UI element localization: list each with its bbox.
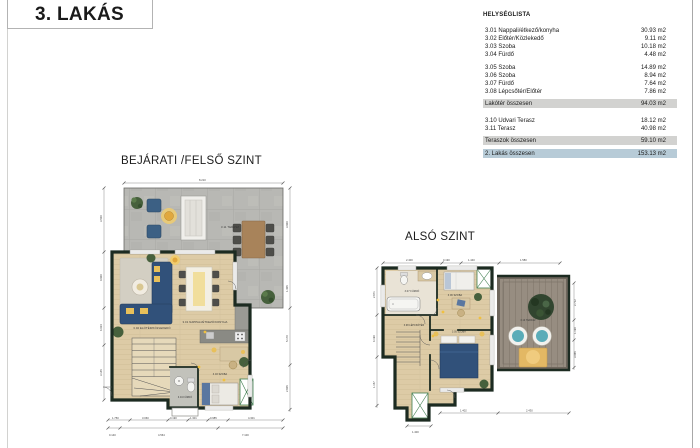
entry-step xyxy=(172,408,198,416)
total-label: Teraszok összesen xyxy=(483,137,536,145)
plant xyxy=(480,380,489,389)
decor-lamp xyxy=(241,350,245,354)
living-total-row: Lakótér összesen94.03 m2 xyxy=(483,99,677,108)
room-row: 3.03 Szoba10.18 m2 xyxy=(483,43,677,51)
kitchen-cabinet xyxy=(235,305,250,330)
plant xyxy=(239,357,249,367)
svg-text:4.190: 4.190 xyxy=(372,335,376,342)
plant xyxy=(113,327,124,338)
svg-text:4.301: 4.301 xyxy=(248,416,255,420)
room-name: 3.04 Fürdő xyxy=(483,51,514,59)
room-row: 3.11 Terasz40.98 m2 xyxy=(483,125,677,133)
svg-text:1.301: 1.301 xyxy=(190,416,197,420)
svg-text:1.440: 1.440 xyxy=(468,258,475,262)
svg-text:3.900: 3.900 xyxy=(285,221,289,228)
svg-text:2.712: 2.712 xyxy=(573,299,577,306)
svg-text:1.580: 1.580 xyxy=(520,258,527,262)
room-area: 10.18 m2 xyxy=(641,43,677,51)
svg-text:1.190: 1.190 xyxy=(573,327,577,334)
room-label-bath7: 3.07 FÜRDŐ xyxy=(405,290,420,293)
svg-text:0.140: 0.140 xyxy=(109,433,116,437)
room-area: 30.93 m2 xyxy=(641,27,677,35)
room-area: 7.86 m2 xyxy=(644,88,677,96)
room-area: 40.98 m2 xyxy=(641,125,677,133)
svg-text:4.024: 4.024 xyxy=(99,324,103,331)
lower-plan-title: ALSÓ SZINT xyxy=(405,231,475,243)
room-area: 14.89 m2 xyxy=(641,64,677,72)
svg-text:0.900: 0.900 xyxy=(99,274,103,281)
room-name: 3.03 Szoba xyxy=(483,43,515,51)
total-label: Lakótér összesen xyxy=(483,100,532,108)
svg-text:3.500: 3.500 xyxy=(99,215,103,222)
svg-text:4.564: 4.564 xyxy=(158,433,165,437)
armchair xyxy=(147,225,161,238)
svg-text:1.402: 1.402 xyxy=(460,409,467,413)
bathtub xyxy=(387,297,420,311)
room-row: 3.05 Szoba14.89 m2 xyxy=(483,64,677,72)
svg-text:1.405: 1.405 xyxy=(285,285,289,292)
total-area: 94.03 m2 xyxy=(641,100,677,108)
page-title: 3. LAKÁS xyxy=(8,0,152,26)
svg-text:1.157: 1.157 xyxy=(372,381,376,388)
room-label-bath: 3.04 FÜRDŐ xyxy=(178,396,192,399)
plant xyxy=(147,254,156,263)
svg-text:2.671: 2.671 xyxy=(372,291,376,298)
desk-chair xyxy=(229,361,237,369)
room-area: 18.12 m2 xyxy=(641,117,677,125)
room-schedule: HELYSÉGLISTA 3.01 Nappali/étkező/konyha3… xyxy=(483,11,677,159)
lamp-table xyxy=(161,208,177,224)
bathroom-lower: 3.07 FÜRDŐ xyxy=(386,271,437,315)
lower-terrace: 3.10 TERASZ xyxy=(497,276,569,370)
svg-text:3.145: 3.145 xyxy=(99,369,103,376)
room-label-306: 3.06 SZOBA xyxy=(448,294,463,297)
room-label-terrace: 3.11 TERASZ xyxy=(221,225,239,229)
lower-plan: 3.07 FÜRDŐ 3.06 SZOBA xyxy=(372,258,577,434)
bathroom-upper: 3.04 FÜRDŐ xyxy=(170,367,198,408)
double-bed xyxy=(440,336,478,378)
washbasin xyxy=(175,377,184,386)
night-lamp xyxy=(480,332,485,337)
svg-text:1.400: 1.400 xyxy=(412,430,419,434)
side-lamp-core xyxy=(173,258,178,263)
dining-set xyxy=(179,267,219,311)
room-schedule-header: HELYSÉGLISTA xyxy=(483,11,677,19)
kitchen-sink xyxy=(206,332,214,339)
room-row: 3.06 Szoba8.94 m2 xyxy=(483,72,677,80)
room-area: 4.48 m2 xyxy=(644,51,677,59)
toilet xyxy=(187,378,195,392)
large-plant xyxy=(528,294,554,320)
vanity-sink xyxy=(418,271,437,281)
page-title-box: 3. LAKÁS xyxy=(7,0,153,29)
room-label-310: 3.10 TERASZ xyxy=(520,319,536,322)
wardrobe xyxy=(477,269,491,288)
room-label-hall: 3.02 ELŐTÉR/KÖZLEKEDŐ xyxy=(133,325,171,330)
svg-text:2.605: 2.605 xyxy=(285,385,289,392)
bed xyxy=(202,383,238,405)
room-label-bedroom: 3.03 SZOBA xyxy=(213,373,228,376)
svg-text:0.985: 0.985 xyxy=(210,416,217,420)
room-row: 3.04 Fürdő4.48 m2 xyxy=(483,51,677,59)
plant xyxy=(474,293,482,301)
armchair xyxy=(147,199,161,212)
terrace-dining-set xyxy=(233,221,274,258)
upper-plan: 3.11 TERASZ xyxy=(99,178,292,437)
terrace-total-row: Teraszok összesen59.10 m2 xyxy=(483,136,677,145)
total-label: 2. Lakás összesen xyxy=(483,150,535,158)
room-label-305: 3.05 SZOBA xyxy=(452,331,466,334)
room-area: 9.11 m2 xyxy=(645,35,677,43)
room-label-living: 3.01 NAPPALI/ÉTKEZŐ/KONYHA xyxy=(183,319,228,324)
room-area: 7.64 m2 xyxy=(644,80,677,88)
round-lounger xyxy=(509,327,528,346)
room-name: 3.07 Fürdő xyxy=(483,80,514,88)
svg-text:5.170: 5.170 xyxy=(285,335,289,342)
room-label-308: 3.08 LÉPCSŐTÉR xyxy=(404,324,425,327)
right-page-border xyxy=(692,0,693,448)
outdoor-lounger xyxy=(181,196,206,240)
single-bed xyxy=(444,272,474,290)
room-name: 3.01 Nappali/étkező/konyha xyxy=(483,27,559,35)
room-name: 3.08 Lépcsőtér/Előtér xyxy=(483,88,542,96)
room-area: 8.94 m2 xyxy=(644,72,677,80)
svg-text:1.750: 1.750 xyxy=(112,416,119,420)
plant xyxy=(261,290,275,304)
terrace-table xyxy=(519,348,547,367)
decor-lamp xyxy=(212,348,217,353)
svg-text:2.430: 2.430 xyxy=(526,409,533,413)
upper-plan-title: BEJÁRATI /FELSŐ SZINT xyxy=(121,155,262,167)
room-row: 3.10 Udvari Terasz18.12 m2 xyxy=(483,117,677,125)
left-margin-rule xyxy=(7,29,8,448)
toilet xyxy=(401,273,408,285)
room-name: 3.05 Szoba xyxy=(483,64,515,72)
room-row: 3.08 Lépcsőtér/Előtér7.86 m2 xyxy=(483,88,677,96)
room-name: 3.10 Udvari Terasz xyxy=(483,117,535,125)
coffee-table xyxy=(132,279,148,295)
total-area: 153.13 m2 xyxy=(638,150,677,158)
svg-text:8.210: 8.210 xyxy=(199,178,206,182)
svg-text:2.400: 2.400 xyxy=(406,258,413,262)
room-name: 3.02 Előtér/Közlekedő xyxy=(483,35,544,43)
room-row: 3.01 Nappali/étkező/konyha30.93 m2 xyxy=(483,27,677,35)
svg-text:3.060: 3.060 xyxy=(142,416,149,420)
shaft xyxy=(412,393,428,418)
svg-text:0.190: 0.190 xyxy=(170,416,177,420)
room-row: 3.07 Fürdő7.64 m2 xyxy=(483,80,677,88)
room-row: 3.02 Előtér/Közlekedő9.11 m2 xyxy=(483,35,677,43)
grand-total-row: 2. Lakás összesen153.13 m2 xyxy=(483,149,677,158)
svg-text:7.100: 7.100 xyxy=(242,433,249,437)
room-name: 3.06 Szoba xyxy=(483,72,515,80)
svg-text:3.065: 3.065 xyxy=(573,351,577,358)
round-lounger xyxy=(533,327,552,346)
stove xyxy=(235,332,245,341)
room-name: 3.11 Terasz xyxy=(483,125,515,133)
floorplan-sheet: 3.11 TERASZ xyxy=(0,0,700,448)
total-area: 59.10 m2 xyxy=(641,137,677,145)
plant xyxy=(131,197,143,209)
svg-text:0.190: 0.190 xyxy=(443,258,450,262)
